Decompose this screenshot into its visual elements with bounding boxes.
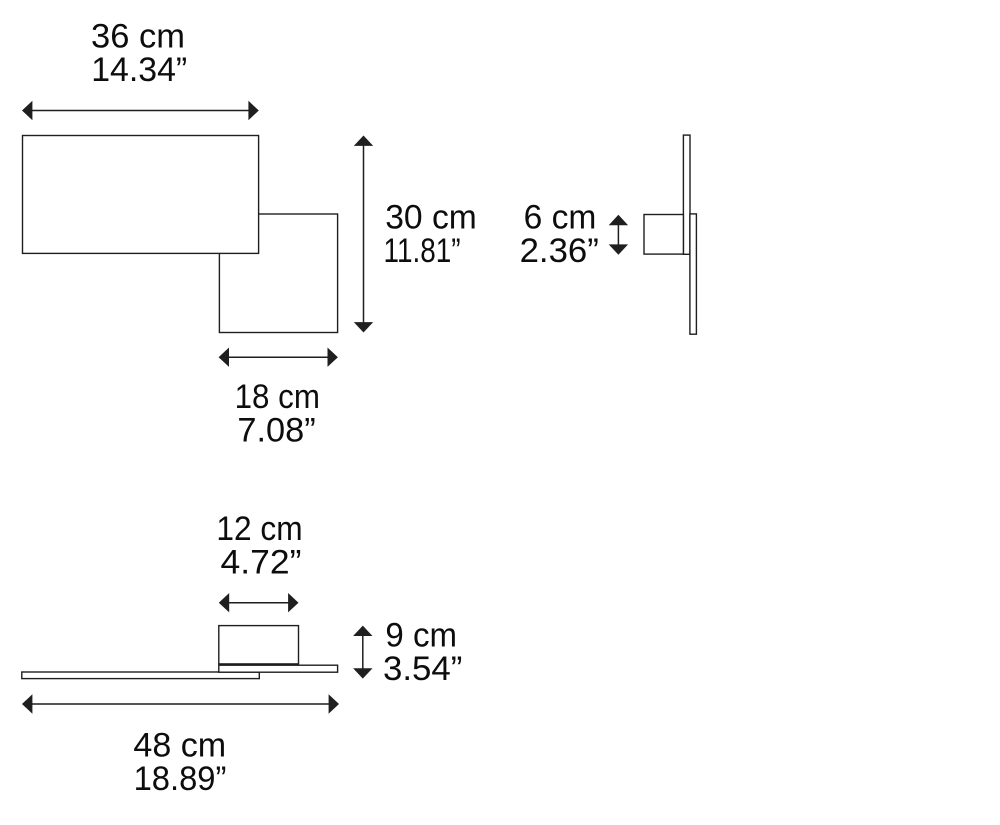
svg-text:12 cm: 12 cm	[216, 510, 302, 548]
svg-text:18 cm: 18 cm	[235, 378, 320, 416]
svg-text:36 cm: 36 cm	[91, 18, 185, 56]
svg-text:4.72”: 4.72”	[221, 543, 302, 581]
svg-text:18.89”: 18.89”	[134, 760, 227, 798]
svg-text:2.36”: 2.36”	[520, 232, 599, 270]
svg-text:14.34”: 14.34”	[91, 51, 187, 89]
svg-text:48 cm: 48 cm	[133, 727, 226, 765]
svg-text:11.81”: 11.81”	[384, 232, 461, 270]
svg-text:3.54”: 3.54”	[383, 650, 462, 688]
svg-text:7.08”: 7.08”	[237, 412, 315, 450]
svg-text:9 cm: 9 cm	[385, 616, 457, 654]
svg-text:6 cm: 6 cm	[524, 198, 597, 236]
svg-text:30 cm: 30 cm	[385, 198, 477, 236]
